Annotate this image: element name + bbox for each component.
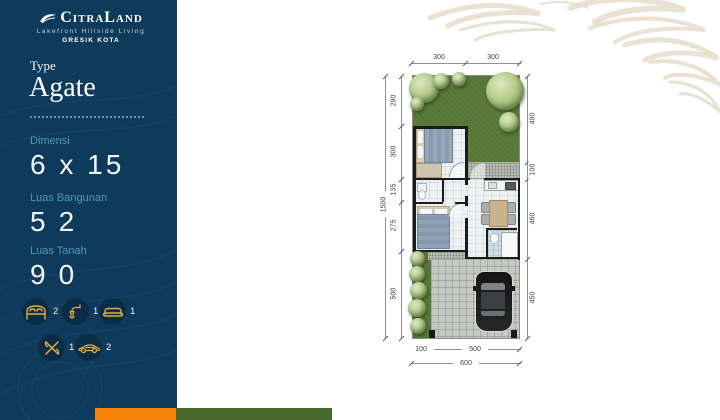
bush: [410, 282, 427, 299]
dim-tick: [399, 336, 405, 342]
wall: [484, 178, 520, 181]
car-rear-window: [481, 311, 505, 316]
car-mirror: [512, 286, 515, 291]
feature-count: 2: [53, 306, 58, 317]
spec-luas-tanah: Luas Tanah 90: [30, 245, 87, 291]
tree: [499, 112, 519, 132]
bed2-blanket: [417, 214, 450, 249]
toilet-bowl: [418, 190, 426, 200]
dim-label-left-total: 1500: [380, 192, 389, 218]
dotted-divider: [30, 116, 144, 118]
wall: [465, 196, 468, 206]
toilet2: [490, 233, 499, 244]
dim-label-top-1: 300: [426, 53, 452, 62]
spec-value: 52: [30, 206, 107, 238]
dim-label-bottom-1: 100: [408, 345, 434, 354]
badge-circle: [75, 334, 102, 361]
bed1-blanket: [424, 128, 453, 163]
dim-label-bottom-total: 600: [453, 359, 479, 368]
feature-bathrooms: 1: [62, 298, 98, 325]
car-mirror: [473, 286, 476, 291]
bush: [410, 251, 425, 266]
carport-pillar: [511, 330, 517, 338]
feature-count: 1: [93, 306, 98, 317]
wall: [465, 126, 468, 179]
brand-tagline: Lakefront Hillside Living: [26, 28, 156, 35]
dim-label-right-1: 490: [529, 106, 538, 132]
spec-label: Dimensi: [30, 135, 124, 147]
dim-label-top-2: 300: [480, 53, 506, 62]
dim-label-right-2: 100: [529, 157, 538, 183]
wall: [442, 179, 444, 202]
kitchen-stove: [505, 182, 516, 190]
bed1-pillow: [417, 145, 424, 159]
spec-value: 6 x 15: [30, 149, 124, 181]
wall: [518, 178, 521, 260]
dim-tick: [383, 336, 389, 342]
car-roof: [481, 292, 505, 309]
wall: [486, 228, 517, 230]
citraland-swoosh-icon: [39, 12, 57, 24]
bush: [410, 318, 426, 334]
tree: [452, 72, 466, 86]
spec-luas-bangunan: Luas Bangunan 52: [30, 192, 107, 238]
sidebar: CitraLand Lakefront Hillside Living GRES…: [0, 0, 177, 420]
feature-carport: 2: [75, 334, 111, 361]
tree-large: [486, 72, 524, 110]
badge-circle: [22, 298, 49, 325]
type-name: Agate: [29, 72, 96, 104]
spec-label: Luas Tanah: [30, 245, 87, 257]
brand-logo: CitraLand Lakefront Hillside Living GRES…: [26, 9, 156, 44]
feature-kitchen: 1: [38, 334, 74, 361]
dim-tick: [517, 347, 523, 353]
shower-tray: [501, 232, 518, 258]
dim-label-right-3: 460: [529, 206, 538, 232]
dining-table: [489, 200, 508, 227]
dim-label-left-5: 500: [390, 281, 399, 307]
wall: [465, 179, 468, 185]
badge-circle: [99, 298, 126, 325]
wall: [413, 126, 416, 252]
feature-livingroom: 1: [99, 298, 135, 325]
spec-dimensi: Dimensi 6 x 15: [30, 135, 124, 181]
carport-pillar: [429, 330, 435, 338]
flyer-page: CitraLand Lakefront Hillside Living GRES…: [0, 0, 720, 420]
dim-label-left-4: 275: [390, 213, 399, 239]
bed1-pillow: [417, 130, 424, 144]
dim-label-left-3: 135: [390, 177, 399, 203]
tree: [433, 73, 449, 89]
wall: [413, 202, 443, 204]
brand-name: CitraLand: [60, 9, 143, 27]
feature-count: 2: [106, 342, 111, 353]
dim-label-bottom-2: 500: [462, 345, 488, 354]
wall: [486, 228, 488, 257]
accent-bar-green: [176, 408, 332, 420]
bush: [409, 266, 425, 282]
dim-label-right-4: 450: [529, 285, 538, 311]
brand-city: GRESIK KOTA: [26, 37, 156, 44]
car-windshield: [481, 283, 505, 290]
dim-label-left-1: 290: [390, 88, 399, 114]
dim-tick: [517, 361, 523, 367]
wall: [465, 218, 468, 257]
wall: [413, 126, 468, 129]
bed-icon: [25, 304, 47, 320]
feature-count: 1: [130, 306, 135, 317]
cutlery-icon: [43, 339, 61, 357]
car-top-view: [475, 271, 513, 332]
dim-label-left-2: 300: [390, 139, 399, 165]
wall: [465, 257, 520, 260]
dining-chair: [507, 202, 516, 213]
badge-circle: [62, 298, 89, 325]
dim-line-left-inner: [401, 76, 402, 338]
car-icon: [77, 341, 101, 355]
shower-icon: [67, 303, 85, 321]
badge-circle: [38, 334, 65, 361]
spec-label: Luas Bangunan: [30, 192, 107, 204]
spec-value: 90: [30, 259, 87, 291]
dim-tick: [525, 336, 531, 342]
feature-bedrooms: 2: [22, 298, 58, 325]
bedroom1-wardrobe: [416, 163, 442, 178]
bush: [408, 299, 426, 317]
feature-count: 1: [69, 342, 74, 353]
kitchen-sink: [488, 182, 497, 189]
dining-chair: [507, 214, 516, 225]
accent-bar-orange: [95, 408, 176, 420]
tree: [410, 97, 424, 111]
sofa-icon: [102, 305, 124, 319]
